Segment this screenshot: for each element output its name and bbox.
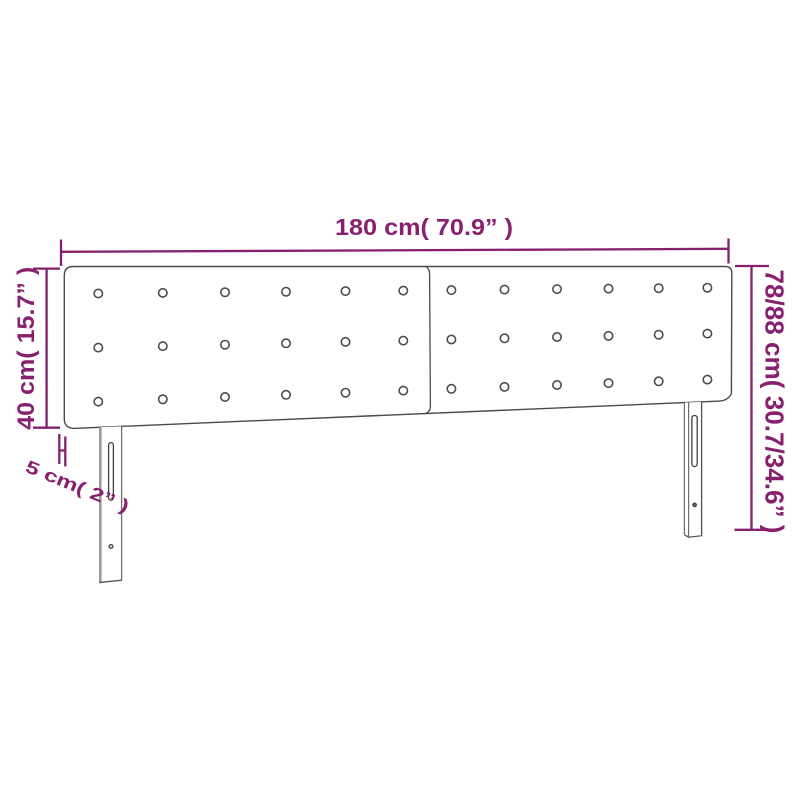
svg-text:40 cm( 15.7” ): 40 cm( 15.7” )	[13, 267, 40, 430]
svg-text:180 cm( 70.9” ): 180 cm( 70.9” )	[335, 214, 513, 240]
svg-text:78/88 cm( 30.7/34.6” ): 78/88 cm( 30.7/34.6” )	[760, 270, 790, 534]
